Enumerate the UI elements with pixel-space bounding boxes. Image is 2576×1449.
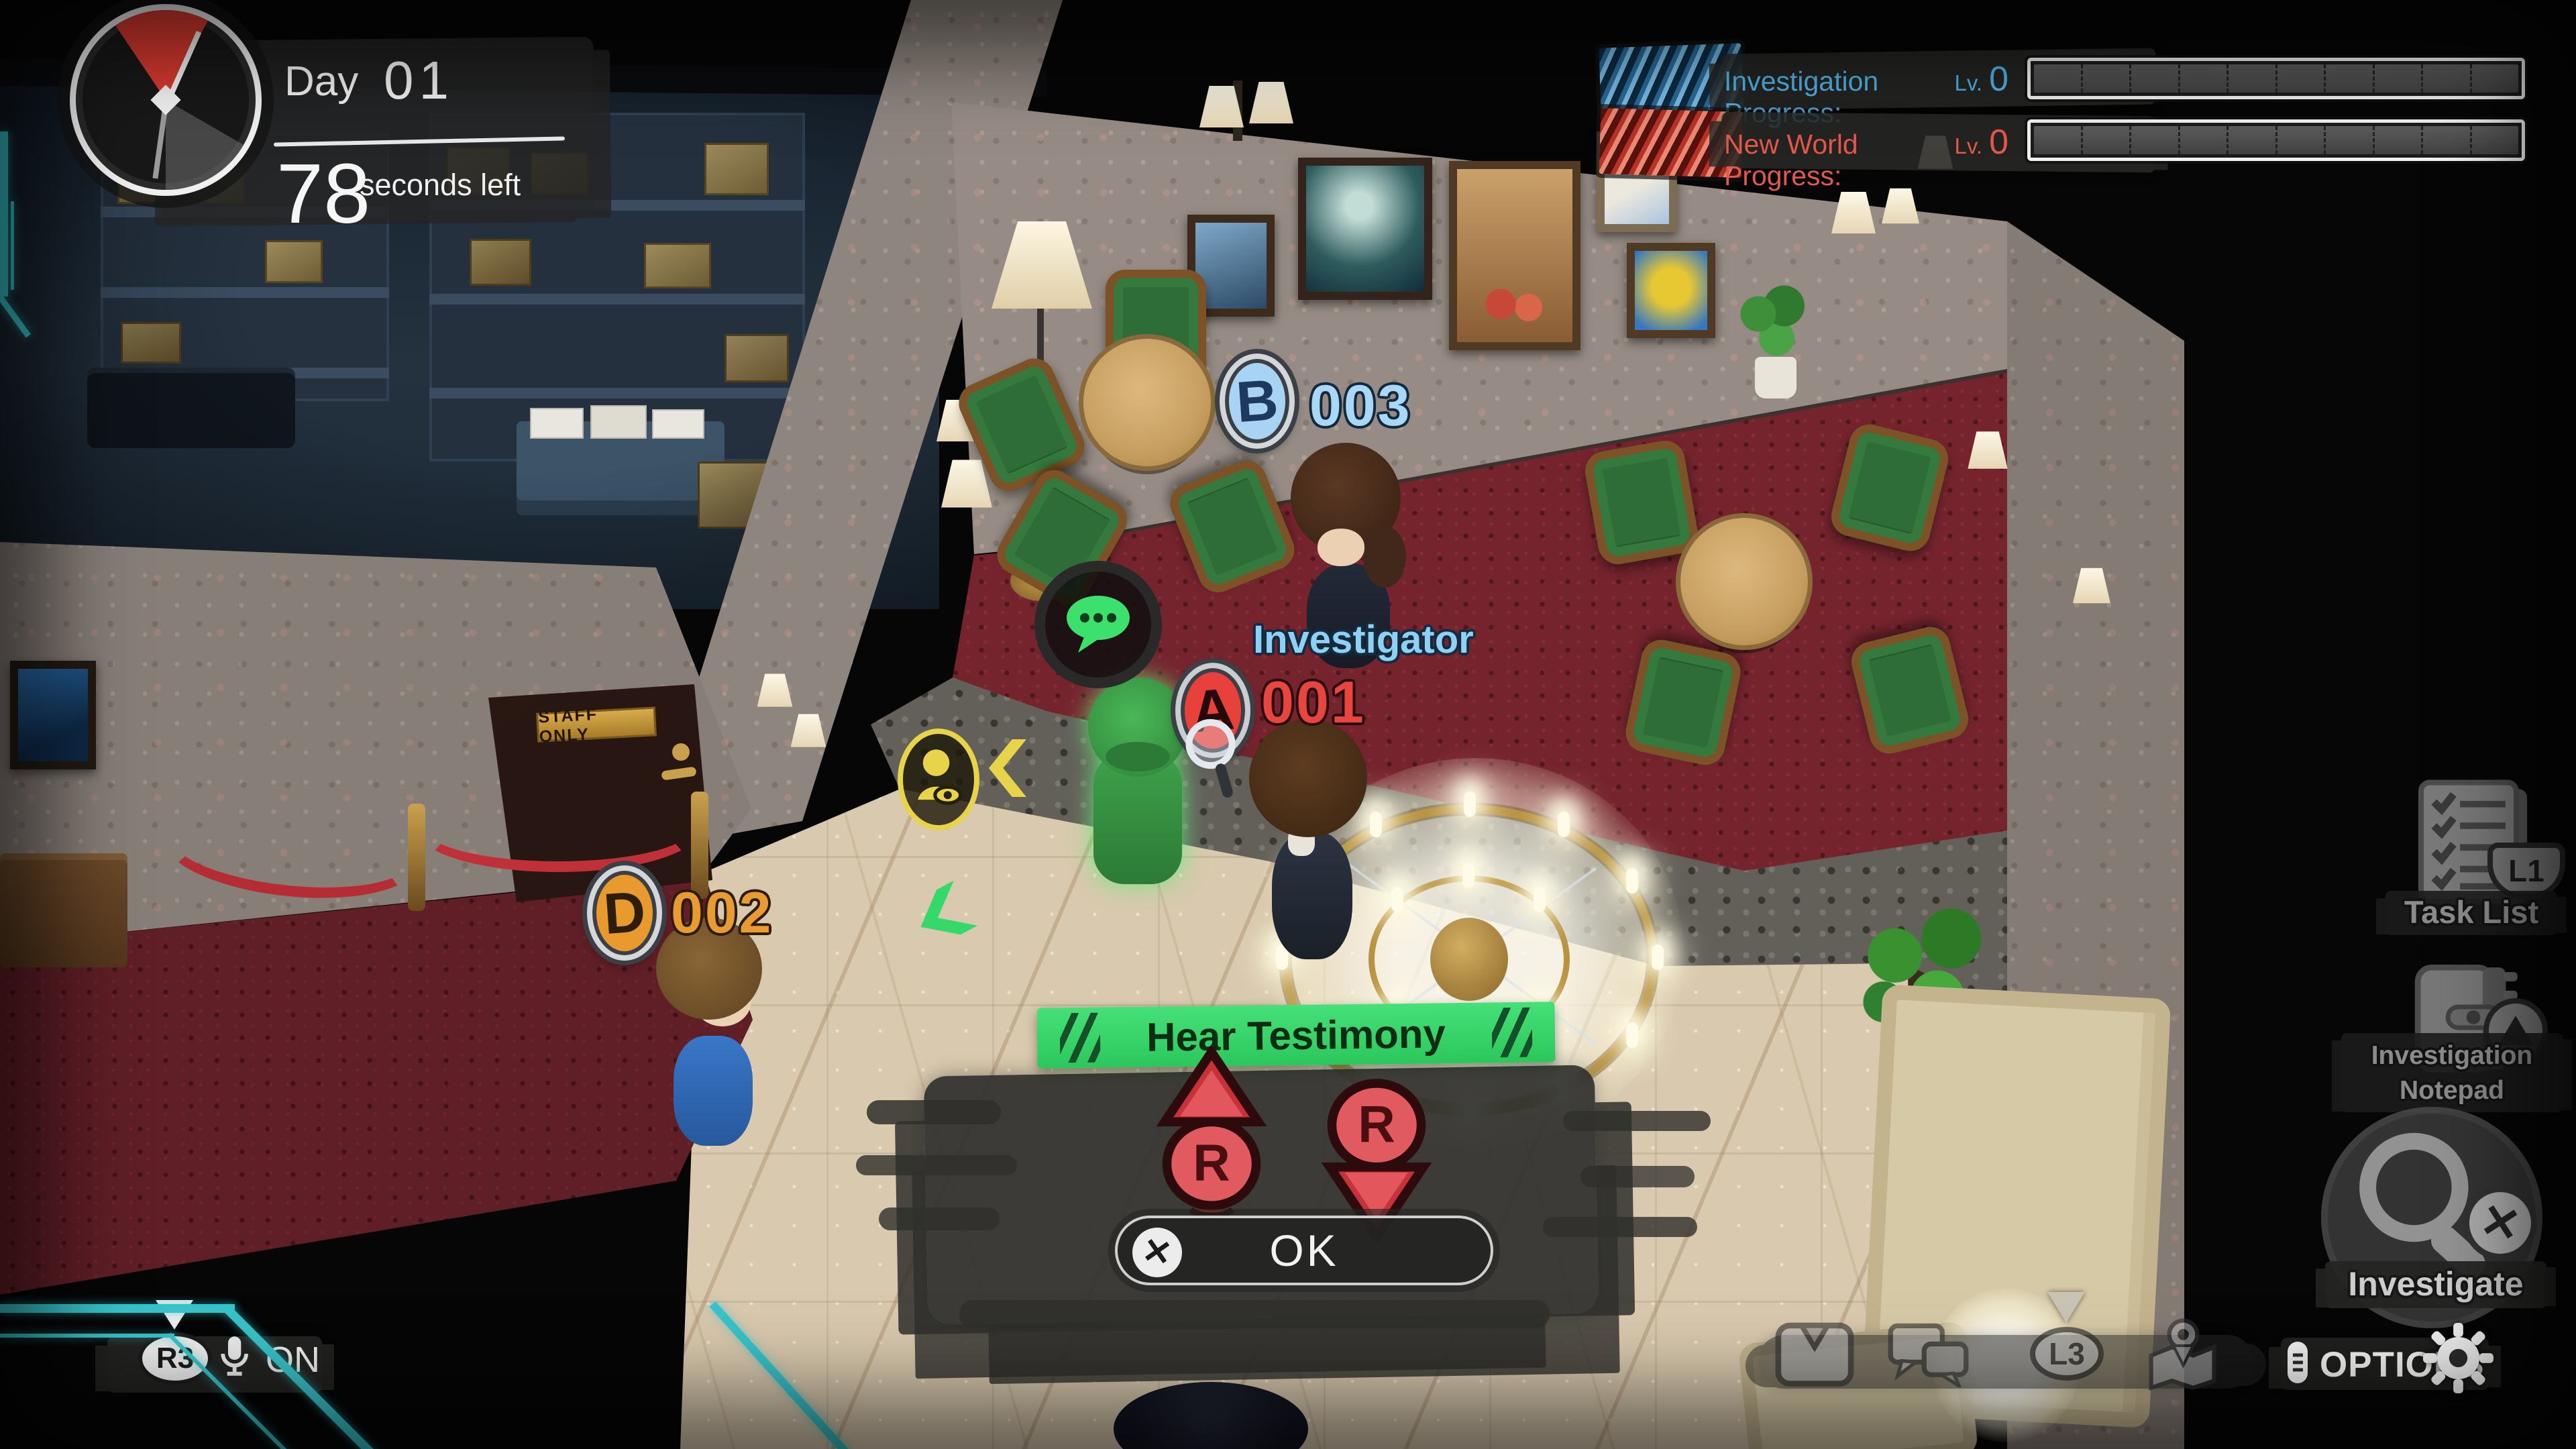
ok-button[interactable]: ✕ OK [1115, 1216, 1493, 1285]
round-table [1083, 339, 1211, 466]
cross-glyph: ✕ [2475, 1192, 2525, 1254]
round-table [1680, 518, 1808, 645]
hud-accent [0, 131, 8, 297]
touchpad-icon[interactable] [1771, 1309, 1858, 1387]
witness-marker[interactable] [898, 729, 979, 830]
banner-slash-left [1060, 1013, 1101, 1063]
plant [1736, 282, 1810, 362]
task-list-label: Task List [2385, 891, 2557, 935]
plant-pot [1755, 357, 1796, 398]
npc-boy [651, 918, 771, 1146]
hud-corner-line [0, 1334, 174, 1338]
svg-text:R: R [1193, 1134, 1230, 1192]
progress-label-new-world: New World Progress: Lv. 0 [1724, 122, 2008, 164]
hud-corner-line [0, 1304, 235, 1313]
door-plaque: STAFF ONLY [536, 706, 657, 742]
progress-bar-investigation [2027, 58, 2525, 99]
investigate-label: Investigate [2325, 1261, 2546, 1308]
badge-letter: B [1234, 366, 1281, 435]
cross-glyph: ✕ [1139, 1230, 1175, 1275]
banner-slash-right [1492, 1008, 1533, 1058]
seconds-label: seconds left [360, 168, 521, 203]
hud-accent [11, 201, 14, 290]
investigator-title: Investigator [1253, 617, 1474, 662]
game-screen: STAFF ONLY [0, 0, 2576, 1449]
l3-stick-button[interactable]: L3 [2030, 1327, 2104, 1381]
picture-frame [1449, 161, 1580, 350]
wall-lamp [1249, 82, 1293, 123]
map-icon[interactable] [2144, 1313, 2221, 1391]
menu-notepad[interactable]: Investigation Notepad [2314, 951, 2576, 1112]
r-stick-up-button[interactable]: R [1151, 1046, 1272, 1221]
stick-press-arrow [2047, 1292, 2085, 1323]
svg-text:R: R [1358, 1095, 1395, 1153]
character-number-a: 001 [1261, 668, 1366, 737]
witness-eye-icon [910, 742, 967, 817]
speech-bubble-icon [1058, 591, 1138, 658]
seconds-value: 78 [276, 145, 370, 242]
menu-investigate[interactable]: ✕ Investigate [2308, 1100, 2576, 1328]
chat-icon[interactable] [1886, 1320, 1970, 1387]
wall-lamp [1882, 189, 1919, 224]
character-badge-b: B [1220, 354, 1295, 449]
day-value: 01 [384, 50, 454, 111]
badge-letter: D [602, 878, 648, 947]
painting [10, 661, 96, 769]
day-label: Day [284, 58, 358, 105]
speech-bubble-marker[interactable] [1034, 561, 1162, 688]
player-investigator [1249, 719, 1370, 961]
prompt-banner: Hear Testimony [1036, 1002, 1555, 1068]
character-number-d: 002 [671, 880, 773, 947]
cross-button-badge: ✕ [2463, 1186, 2537, 1260]
progress-label-investigation: Investigation Progress: Lv. 0 [1724, 59, 2008, 101]
character-badge-d: D [587, 865, 662, 961]
gear-icon[interactable] [2423, 1323, 2493, 1393]
progress-bar-new-world [2027, 119, 2525, 161]
options-button-icon[interactable] [2278, 1339, 2318, 1387]
chandelier-hub [1430, 918, 1508, 1001]
picture-frame [1298, 158, 1432, 300]
door-plaque-text: STAFF ONLY [538, 702, 655, 747]
menu-task-list[interactable]: L1 Task List [2328, 778, 2569, 939]
timer-clock [70, 4, 262, 196]
wall-lamp [1831, 192, 1876, 233]
sideboard [0, 853, 127, 967]
cross-button-badge: ✕ [1132, 1228, 1182, 1277]
character-number-b: 003 [1309, 373, 1412, 439]
armchair [1582, 437, 1701, 567]
door-handle [672, 743, 690, 761]
velvet-rope [416, 785, 700, 872]
picture-frame [1627, 243, 1715, 338]
